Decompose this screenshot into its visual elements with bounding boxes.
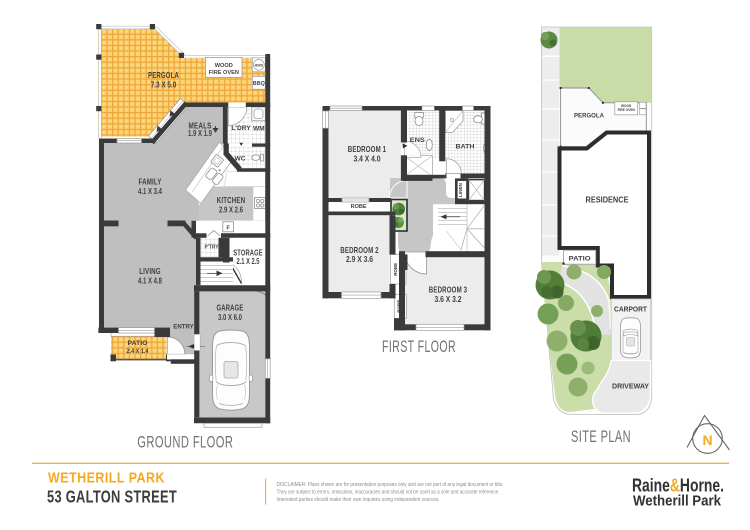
svg-text:3.0 X 6.0: 3.0 X 6.0 — [218, 313, 242, 322]
svg-text:53 GALTON STREET: 53 GALTON STREET — [47, 487, 177, 507]
svg-text:RESIDENCE: RESIDENCE — [586, 196, 629, 205]
svg-text:PATIO: PATIO — [128, 340, 148, 347]
svg-text:GROUND FLOOR: GROUND FLOOR — [137, 434, 233, 452]
svg-text:WC: WC — [235, 156, 246, 163]
svg-text:ENTRY: ENTRY — [173, 324, 194, 331]
svg-text:1.9 X 1.9: 1.9 X 1.9 — [188, 129, 212, 138]
svg-text:Interested parties should make: Interested parties should make their own… — [277, 497, 440, 503]
svg-text:LIVING: LIVING — [139, 266, 161, 276]
svg-text:PERGOLA: PERGOLA — [148, 70, 179, 80]
svg-text:F: F — [226, 226, 230, 232]
svg-text:ENS: ENS — [410, 137, 426, 144]
svg-text:BATH: BATH — [456, 143, 475, 150]
svg-text:SITE PLAN: SITE PLAN — [571, 428, 631, 446]
svg-text:FAMILY: FAMILY — [139, 177, 162, 187]
svg-text:FIRST FLOOR: FIRST FLOOR — [382, 338, 456, 356]
svg-text:They are subject to errors, om: They are subject to errors, omissions, i… — [277, 490, 500, 496]
svg-text:2.9 X 2.6: 2.9 X 2.6 — [219, 206, 243, 215]
svg-text:L'DRY: L'DRY — [231, 125, 251, 132]
svg-text:DRIVEWAY: DRIVEWAY — [612, 381, 649, 390]
svg-text:Wetherill Park: Wetherill Park — [633, 493, 722, 509]
svg-text:WETHERILL PARK: WETHERILL PARK — [48, 470, 165, 487]
svg-text:2.1 X 2.5: 2.1 X 2.5 — [237, 257, 260, 266]
svg-text:3.4 X 4.0: 3.4 X 4.0 — [354, 154, 382, 163]
svg-text:WOOD: WOOD — [215, 63, 233, 69]
svg-text:STORAGE: STORAGE — [233, 248, 263, 258]
svg-text:2.9 X 3.6: 2.9 X 3.6 — [346, 255, 374, 264]
svg-text:ROBE: ROBE — [351, 204, 367, 210]
svg-text:KITCHEN: KITCHEN — [217, 195, 246, 205]
svg-text:N: N — [702, 432, 712, 448]
svg-text:ROBE: ROBE — [393, 263, 398, 276]
svg-text:7.3 X 5.0: 7.3 X 5.0 — [151, 81, 177, 90]
svg-text:CARPORT: CARPORT — [614, 304, 647, 313]
svg-text:FIRE OVEN: FIRE OVEN — [209, 70, 239, 76]
svg-text:PERGOLA: PERGOLA — [574, 113, 604, 120]
svg-text:2.4 X 1.4: 2.4 X 1.4 — [127, 348, 149, 355]
svg-text:BEDROOM 1: BEDROOM 1 — [348, 144, 387, 154]
svg-text:DISCLAIMER: Plans shown are fo: DISCLAIMER: Plans shown are for presenta… — [277, 482, 504, 488]
svg-text:PATIO: PATIO — [569, 255, 591, 262]
svg-text:BEDROOM 2: BEDROOM 2 — [340, 245, 379, 255]
svg-text:FIRE OVEN: FIRE OVEN — [618, 108, 636, 112]
svg-text:HWS: HWS — [255, 64, 264, 68]
svg-text:4.1 X 4.8: 4.1 X 4.8 — [138, 277, 162, 286]
svg-text:GARAGE: GARAGE — [217, 303, 244, 313]
svg-text:LINEN: LINEN — [458, 182, 463, 197]
svg-text:P'TRY: P'TRY — [205, 245, 219, 251]
svg-text:3.6 X 3.2: 3.6 X 3.2 — [435, 295, 463, 304]
svg-text:BEDROOM 3: BEDROOM 3 — [429, 285, 468, 295]
svg-text:BBQ: BBQ — [253, 81, 265, 87]
svg-text:WM: WM — [253, 126, 265, 133]
svg-text:4.1 X 3.4: 4.1 X 3.4 — [138, 187, 162, 196]
